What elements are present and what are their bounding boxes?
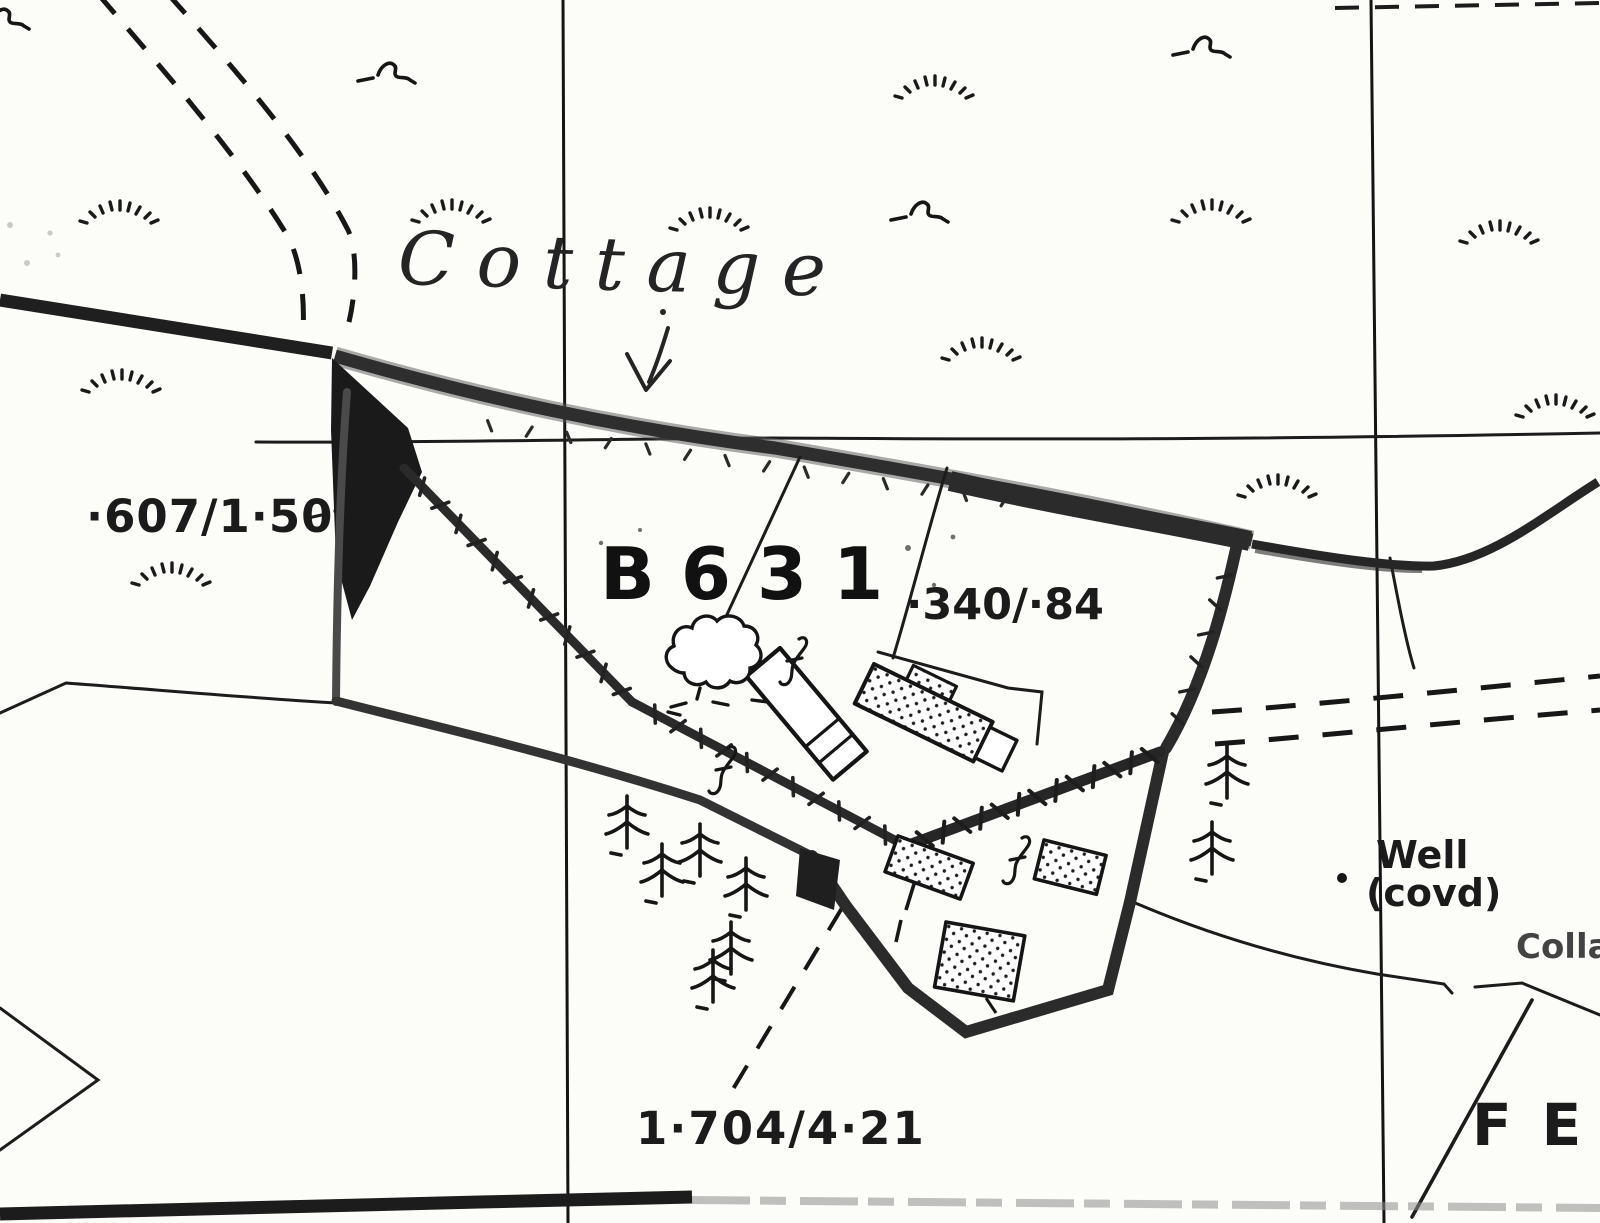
outbuilding-small-west xyxy=(885,836,973,899)
grass-tuft-icon xyxy=(942,338,1020,360)
hedgerows xyxy=(404,421,1232,846)
rough-pasture-squiggle-icon xyxy=(891,202,948,222)
parcel-number-label: B631 xyxy=(600,538,909,611)
interior-dash-short xyxy=(896,884,914,942)
area-ref-center-label: ·340/·84 xyxy=(906,584,1104,628)
boundary-to-well xyxy=(1133,902,1452,993)
handwritten-cottage-label: Cottage xyxy=(397,222,849,310)
bottom-left-wedge xyxy=(0,1008,98,1150)
grass-tuft-icon xyxy=(1460,221,1538,243)
scan-smudges xyxy=(7,222,60,266)
grid-line-vertical-left xyxy=(563,0,568,1223)
conifer-icon xyxy=(606,796,648,855)
track-curve-left-b xyxy=(168,0,355,322)
track-right-lower xyxy=(1215,710,1600,744)
grass-tuft-icon xyxy=(1516,395,1594,417)
fence-mark-label: FE xyxy=(1472,1096,1600,1155)
conifer-icon xyxy=(641,844,683,903)
fence-road-spur xyxy=(1390,558,1414,668)
track-curve-left-a xyxy=(98,0,303,332)
brace-icon xyxy=(1003,837,1030,884)
rough-pasture-squiggle-icon xyxy=(1173,37,1230,57)
conifer-icon xyxy=(710,922,752,981)
fence-dashed-top-right xyxy=(1335,3,1600,8)
rough-pasture-squiggle-icon xyxy=(358,63,415,83)
grass-tuft-icon xyxy=(82,370,160,392)
buildings xyxy=(746,648,1106,1013)
conifer-icon xyxy=(692,950,734,1009)
cottage-building xyxy=(746,648,866,780)
scanned-map: Cottage ·607/1·50 B631 ·340/·84 Well (co… xyxy=(0,0,1600,1223)
conifer-icon xyxy=(1206,746,1248,805)
pencil-arrow-icon xyxy=(627,309,670,390)
track-right-upper xyxy=(1212,676,1600,712)
outbuilding-tail xyxy=(986,998,996,1013)
area-ref-left-label: ·607/1·50 xyxy=(86,494,334,540)
outbuilding-square-south xyxy=(935,922,1025,1001)
grid-line-vertical-right xyxy=(1371,0,1384,1223)
grass-tuft-icon xyxy=(895,76,973,98)
rough-pasture-squiggle-icon xyxy=(0,9,29,29)
area-ref-bottom-label: 1·704/4·21 xyxy=(636,1106,926,1152)
colla-boundary xyxy=(1475,983,1600,1015)
grass-tuft-icon xyxy=(80,201,158,223)
well-qualifier-label: (covd) xyxy=(1366,874,1501,913)
grass-tuft-icon xyxy=(132,563,210,585)
boundary-top-thick-east xyxy=(950,481,1250,541)
grass-tuft-icon xyxy=(1172,200,1250,222)
well-dot xyxy=(1337,873,1347,883)
road-right xyxy=(1252,482,1598,566)
partial-right-edge-label: Colla xyxy=(1516,930,1600,965)
conifer-icon xyxy=(679,824,721,883)
outbuilding-small-east xyxy=(1034,840,1106,894)
road-left xyxy=(0,300,332,353)
well-label: Well xyxy=(1376,836,1468,875)
junction-block xyxy=(796,848,840,910)
conifer-icon xyxy=(1191,822,1233,881)
contour-line-left xyxy=(0,683,336,713)
conifer-icon xyxy=(725,858,767,917)
grass-tuft-icon xyxy=(1238,475,1316,497)
boundary-bottom xyxy=(336,701,812,856)
hedge-a xyxy=(404,468,632,702)
bottom-edge-band xyxy=(0,1197,1600,1214)
tree-icon xyxy=(666,616,768,715)
fence-horizontal xyxy=(256,433,1600,442)
